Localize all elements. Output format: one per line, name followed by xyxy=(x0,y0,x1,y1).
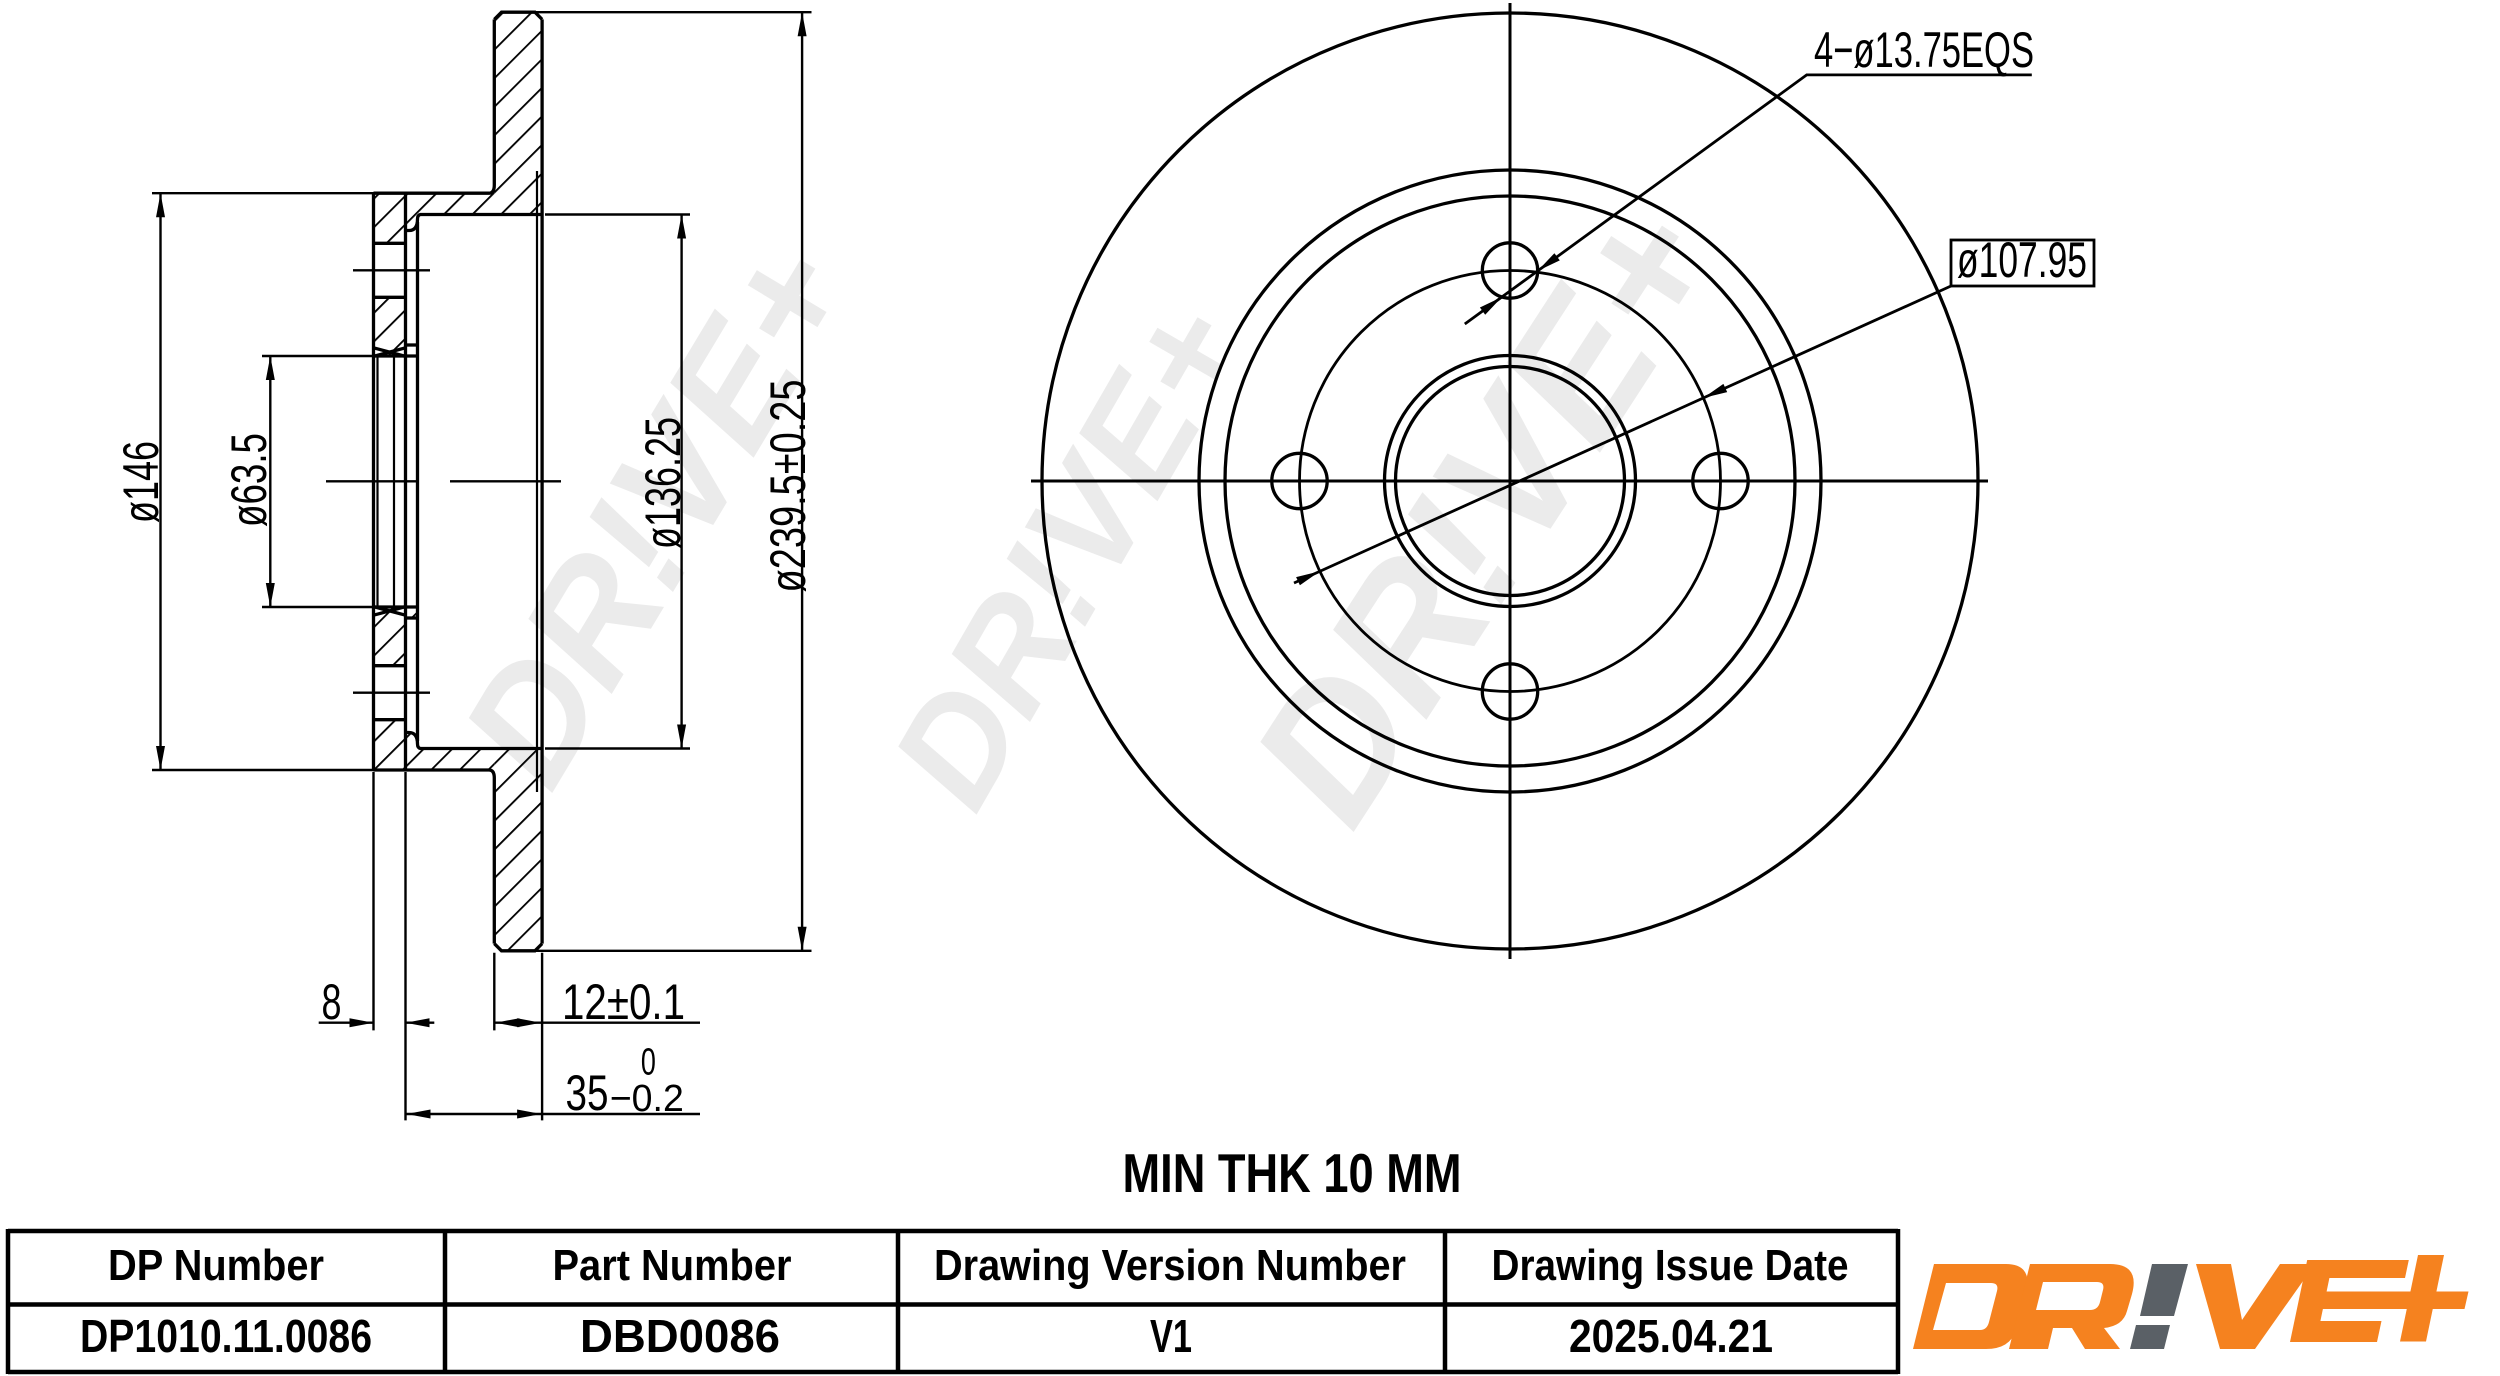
svg-text:Drawing Version Number: Drawing Version Number xyxy=(934,1241,1406,1290)
svg-text:35: 35 xyxy=(566,1065,609,1121)
svg-text:DR!VE+: DR!VE+ xyxy=(860,277,1276,833)
svg-text:DP Number: DP Number xyxy=(108,1241,324,1290)
svg-text:DBD0086: DBD0086 xyxy=(580,1310,780,1362)
svg-text:2025.04.21: 2025.04.21 xyxy=(1569,1310,1773,1362)
svg-text:4−ø13.75EQS: 4−ø13.75EQS xyxy=(1814,22,2034,78)
svg-text:ø239.5±0.25: ø239.5±0.25 xyxy=(760,380,816,593)
svg-text:DR!VE+: DR!VE+ xyxy=(1213,171,1758,857)
svg-text:8: 8 xyxy=(322,974,342,1030)
svg-text:Drawing Issue Date: Drawing Issue Date xyxy=(1492,1241,1849,1290)
svg-text:12±0.1: 12±0.1 xyxy=(562,974,685,1030)
svg-text:ø63.5: ø63.5 xyxy=(221,433,277,527)
svg-text:MIN THK 10 MM: MIN THK 10 MM xyxy=(1123,1142,1462,1204)
svg-text:ø136.25: ø136.25 xyxy=(635,417,691,549)
svg-text:−0.2: −0.2 xyxy=(610,1078,684,1120)
svg-text:ø107.95: ø107.95 xyxy=(1957,232,2087,288)
svg-text:ø146: ø146 xyxy=(113,441,169,523)
svg-text:Part Number: Part Number xyxy=(553,1241,792,1290)
svg-text:DP1010.11.0086: DP1010.11.0086 xyxy=(80,1310,372,1362)
svg-text:V1: V1 xyxy=(1150,1310,1192,1362)
